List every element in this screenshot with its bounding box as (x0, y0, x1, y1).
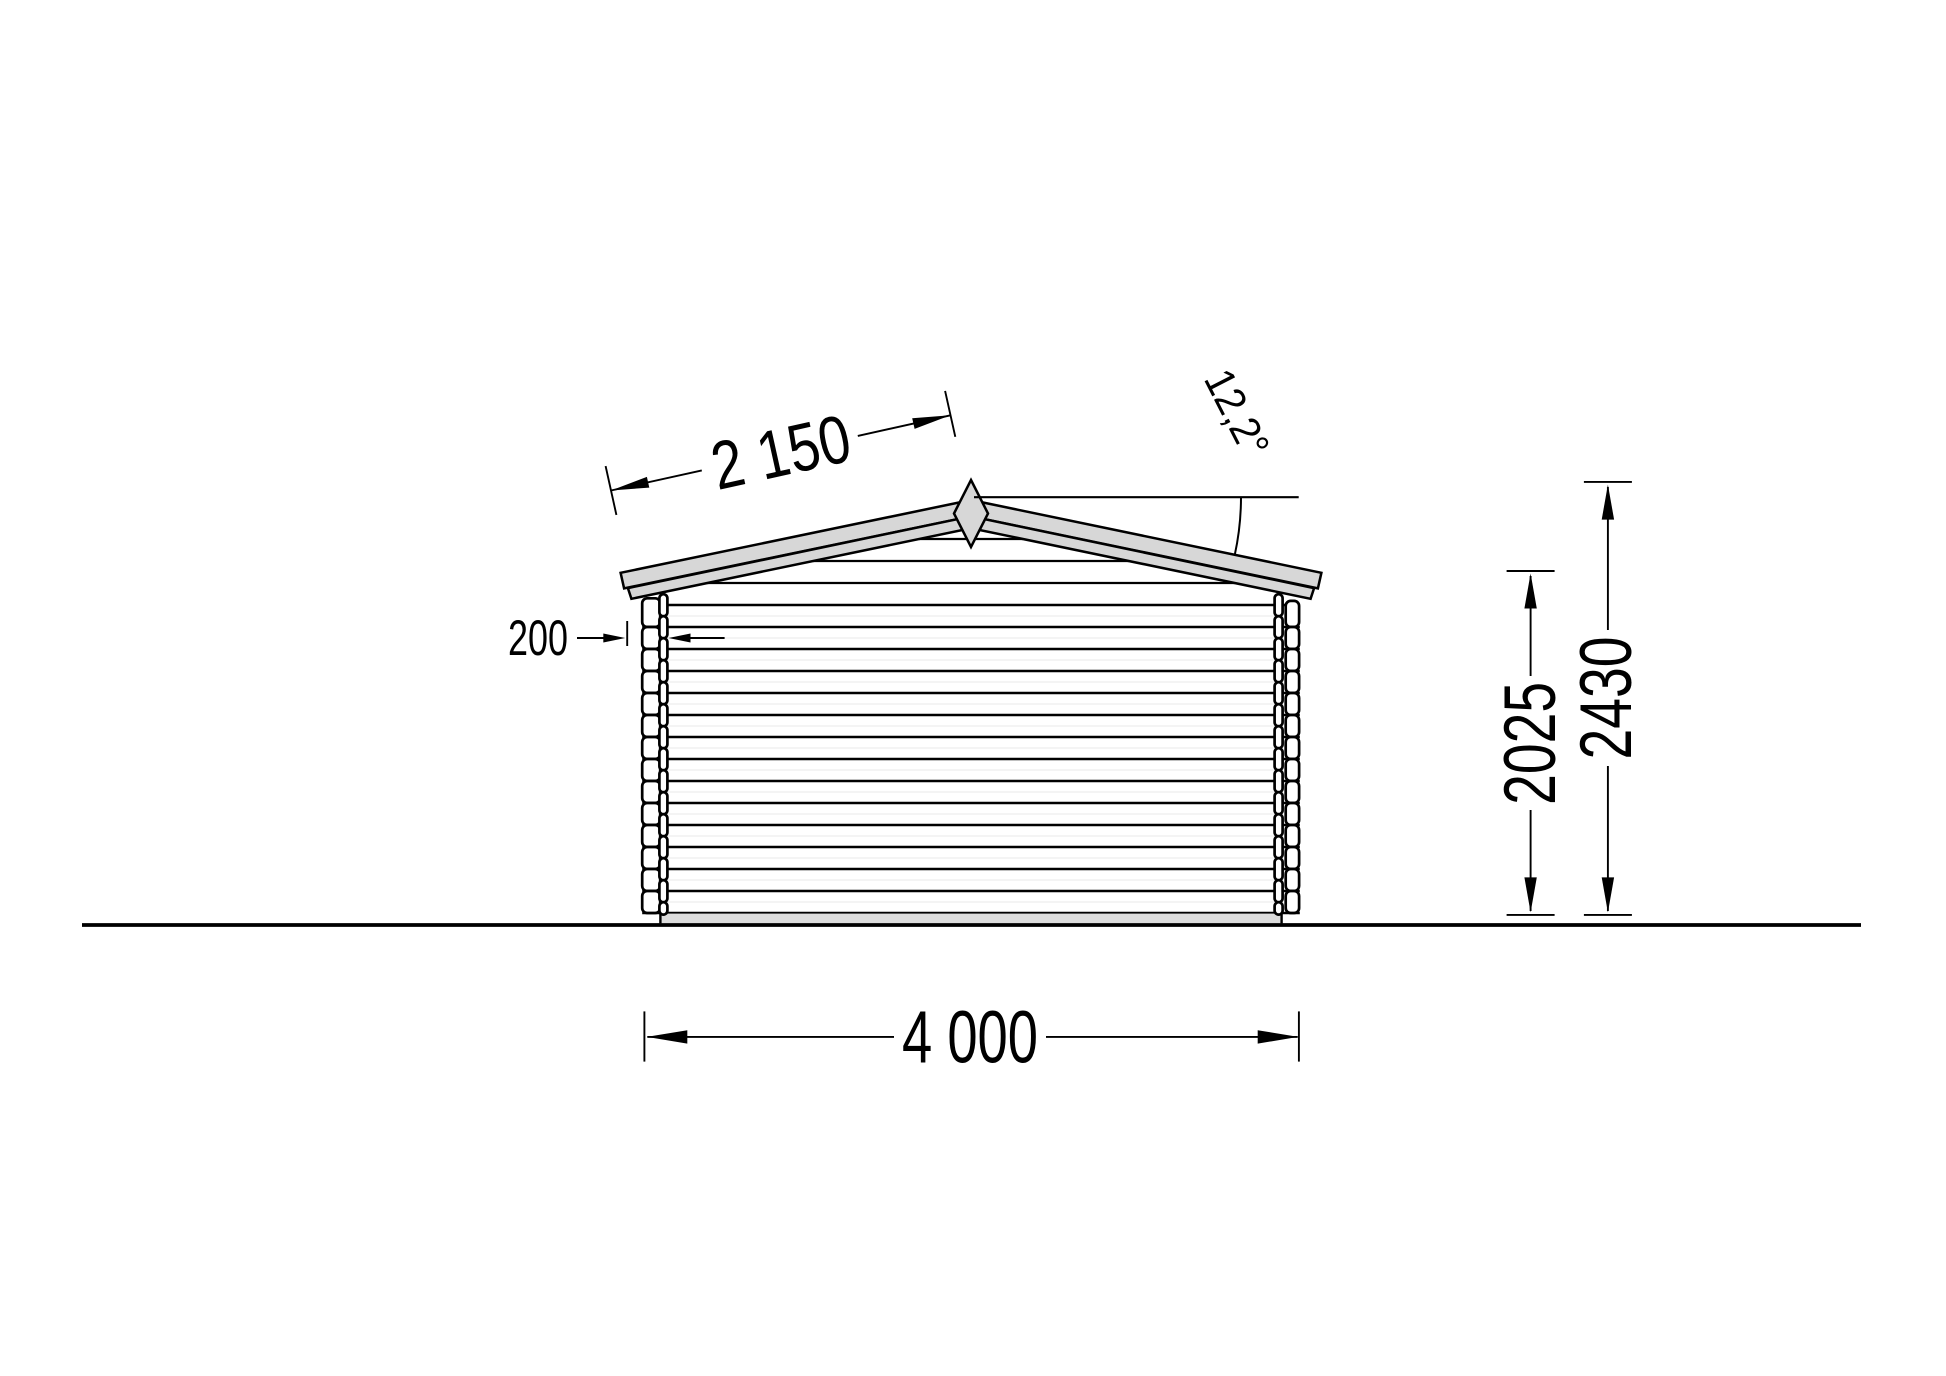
svg-text:4 000: 4 000 (902, 995, 1038, 1078)
svg-text:200: 200 (508, 610, 568, 666)
svg-text:2430: 2430 (1566, 637, 1647, 760)
svg-text:2025: 2025 (1490, 682, 1571, 805)
